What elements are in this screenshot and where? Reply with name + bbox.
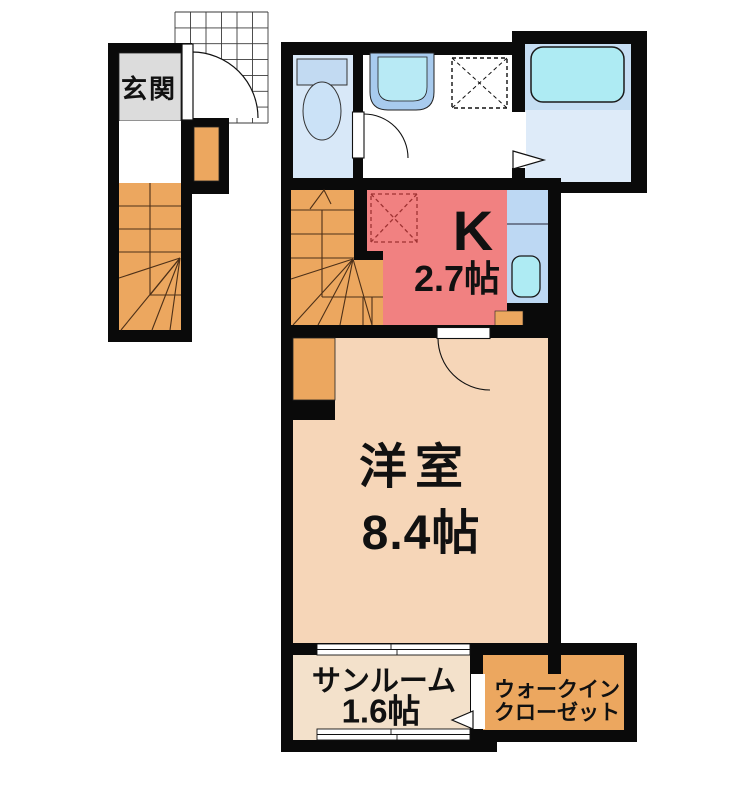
sink-icon	[370, 53, 434, 110]
floor-plan: 玄関 K 2.7帖 洋室 8.4帖 サンルーム 1.6帖 ウォークイン クローゼ…	[0, 0, 743, 800]
closet-label-line2: クローゼット	[494, 703, 620, 724]
washer-pan-icon	[452, 58, 507, 108]
closet-step	[293, 338, 335, 400]
stair-wall-notch	[354, 251, 383, 260]
western-room-size-label: 8.4帖	[362, 510, 481, 558]
kitchen-label: K	[453, 203, 493, 259]
bathroom-lower	[525, 110, 631, 182]
kitchen-sink-icon	[512, 256, 540, 297]
kitchen-cabinet	[495, 311, 523, 326]
closet-wall-stub	[548, 655, 561, 674]
closet-label-line1: ウォークイン	[494, 680, 620, 701]
kitchen-size-label: 2.7帖	[414, 261, 500, 297]
western-room-label: 洋室	[359, 444, 471, 492]
western-room-floor-left	[293, 420, 335, 643]
stair-landing	[194, 127, 219, 181]
stairs-upper-winder	[354, 259, 383, 325]
entrance-door-leaf	[182, 44, 193, 120]
sunroom-size-label: 1.6帖	[342, 695, 421, 728]
entrance-hall	[119, 121, 181, 183]
genkan-label: 玄関	[121, 76, 177, 102]
sliding-window-icon	[317, 729, 470, 740]
sliding-window-icon	[317, 644, 470, 655]
bathtub-icon	[531, 47, 624, 102]
